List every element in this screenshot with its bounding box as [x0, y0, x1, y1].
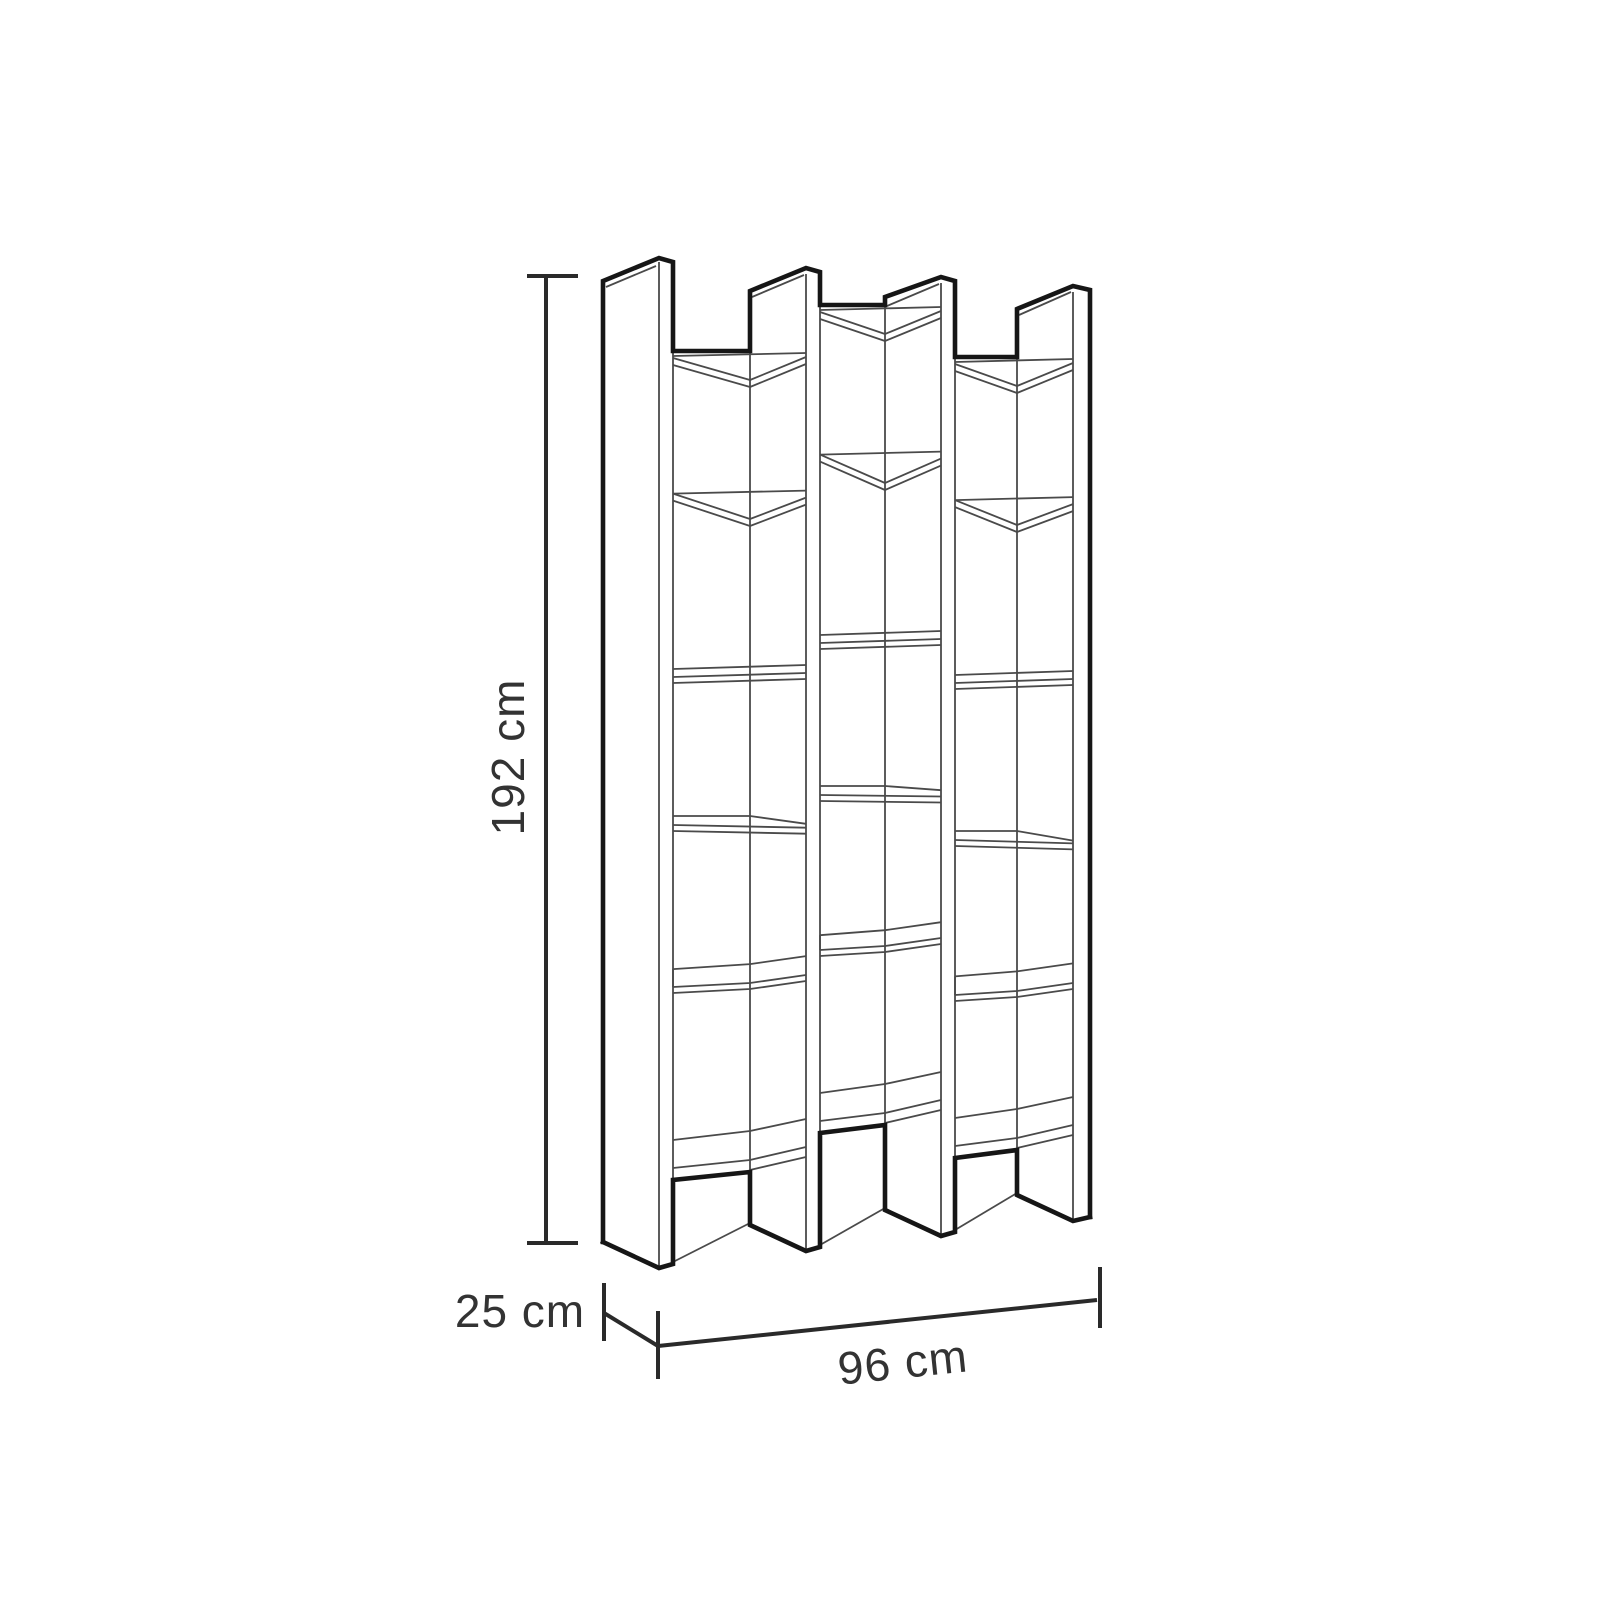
shelf-front-edge [820, 639, 941, 643]
height-dimension: 192 cm [482, 276, 578, 1243]
shelf-thickness [673, 679, 806, 683]
shelf-back-edge [820, 631, 941, 635]
bookshelf-interior-lines [606, 262, 1073, 1266]
bottom-shelf-front-edge [673, 1147, 806, 1168]
shelf-back-edge [820, 452, 941, 455]
diagram-canvas: 192 cm 25 cm 96 cm [0, 0, 1600, 1600]
shelf-back-edge [955, 963, 1073, 976]
shelf-back-edge [673, 491, 806, 494]
top-shelf-thickness [750, 364, 806, 387]
depth-label: 25 cm [455, 1285, 585, 1337]
top-shelf-front-edge [1017, 363, 1073, 386]
top-shelf-thickness [1017, 370, 1073, 393]
bottom-shelf-back-edge [955, 1097, 1073, 1118]
width-dimension: 96 cm [658, 1267, 1100, 1395]
bottom-shelf-front-edge [820, 1100, 941, 1121]
shelf-front-edge [820, 938, 941, 950]
back-foot-edge [673, 1223, 750, 1262]
shelf-front-edge [673, 825, 806, 828]
bottom-shelf-back-edge [673, 1119, 806, 1140]
shelf-back-edge [673, 816, 806, 824]
back-foot-edge [955, 1193, 1017, 1230]
shelf-thickness [955, 685, 1073, 689]
shelf-back-edge [673, 665, 806, 669]
height-label: 192 cm [482, 679, 534, 836]
bookshelf-drawing [603, 258, 1090, 1268]
shelf-thickness [820, 645, 941, 649]
shelf-depth-edge [820, 455, 885, 483]
bottom-shelf-front-edge [955, 1125, 1073, 1146]
shelf-thickness [673, 501, 750, 526]
shelf-front-edge [885, 459, 941, 483]
top-shelf-back-edge [820, 307, 941, 310]
shelf-front-edge [955, 983, 1073, 995]
shelf-front-edge [955, 679, 1073, 683]
shelf-thickness [820, 462, 885, 490]
bottom-shelf-back-edge [820, 1072, 941, 1093]
shelf-thickness [673, 831, 806, 834]
shelf-thickness [955, 846, 1073, 849]
shelf-back-edge [955, 497, 1073, 500]
shelf-back-edge [820, 922, 941, 935]
depth-dimension-line [604, 1313, 658, 1346]
shelf-front-edge [820, 795, 941, 797]
shelf-back-edge [820, 786, 941, 790]
shelf-thickness [885, 466, 941, 490]
top-shelf-front-edge [750, 357, 806, 380]
shelf-depth-edge [955, 500, 1017, 525]
top-shelf-thickness [885, 318, 941, 341]
top-shelf-back-edge [673, 353, 806, 356]
shelf-back-edge [673, 956, 806, 969]
shelf-depth-edge [673, 494, 750, 519]
back-foot-edge [820, 1208, 885, 1245]
shelf-front-edge [955, 840, 1073, 843]
shelf-back-edge [955, 671, 1073, 675]
bookshelf-dimension-diagram: 192 cm 25 cm 96 cm [0, 0, 1600, 1600]
shelf-front-edge [673, 975, 806, 987]
shelf-thickness [820, 801, 941, 803]
top-shelf-back-edge [955, 359, 1073, 362]
shelf-front-edge [673, 673, 806, 677]
top-shelf-front-edge [885, 311, 941, 334]
width-label: 96 cm [835, 1329, 970, 1394]
depth-dimension: 25 cm [455, 1283, 658, 1379]
shelf-back-edge [955, 831, 1073, 841]
shelf-thickness [955, 507, 1017, 532]
